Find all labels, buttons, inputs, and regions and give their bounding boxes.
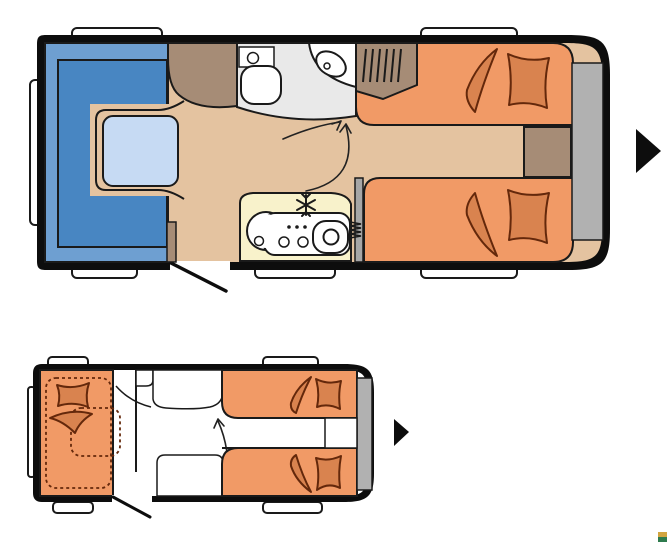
direction-arrow-icon-night <box>394 419 409 446</box>
hob-dot-2 <box>295 225 299 229</box>
sink-drain <box>255 237 264 246</box>
bench-outline-n <box>157 455 223 496</box>
washroom-outline-n <box>153 370 223 409</box>
lounge-table <box>103 116 178 186</box>
hob-dot-1 <box>287 225 291 229</box>
partition-wall <box>355 178 363 262</box>
direction-arrow-icon-day <box>636 129 661 173</box>
duvet-top-bed <box>508 54 549 108</box>
hob-dot-3 <box>303 225 307 229</box>
rear-panel-n <box>357 378 372 490</box>
day-layout-plan <box>30 28 610 291</box>
window-rear-bottom-n <box>263 502 322 513</box>
duvet-bottom-bed-n <box>316 456 341 490</box>
door-side-cabinet <box>167 222 176 262</box>
duvet-top-bed-n <box>316 379 341 409</box>
bedside-cabinet-n <box>325 418 357 448</box>
window-front-bottom-n <box>53 502 93 513</box>
bedside-cabinet <box>524 127 571 177</box>
rear-panel <box>572 63 603 240</box>
caravan-floorplans <box>0 0 672 545</box>
hob-burner-small-2 <box>298 237 308 247</box>
floorplan-canvas <box>0 0 672 545</box>
toilet-flush-button <box>248 53 259 64</box>
cabinet-outline-n <box>136 370 153 386</box>
night-layout-plan <box>28 357 374 517</box>
toilet-bowl <box>241 66 281 104</box>
pillow-front-bed <box>57 383 89 407</box>
duvet-bottom-bed <box>508 190 549 243</box>
hob-burner-large <box>324 230 339 245</box>
corner-logo <box>658 532 667 542</box>
hob-burner-small-1 <box>279 237 289 247</box>
